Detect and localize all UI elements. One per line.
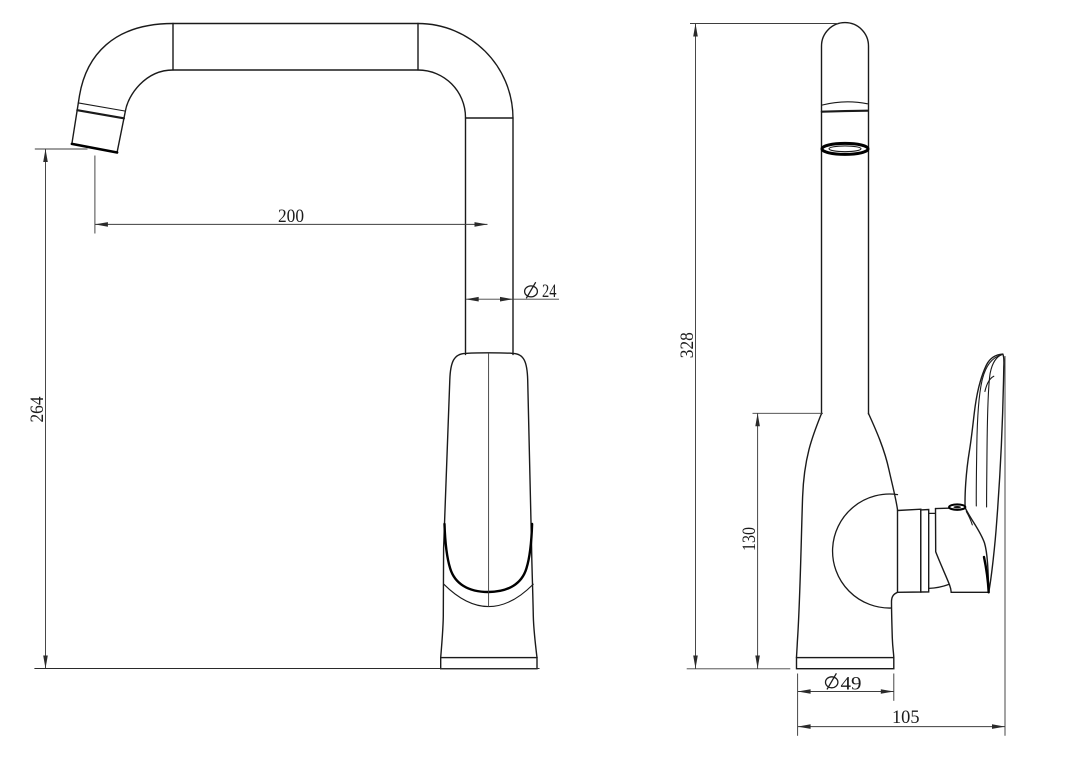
svg-text:130: 130 — [739, 527, 760, 551]
svg-text:24: 24 — [542, 281, 557, 302]
svg-text:328: 328 — [677, 332, 698, 358]
svg-text:264: 264 — [27, 396, 48, 422]
svg-text:105: 105 — [892, 707, 920, 728]
svg-text:200: 200 — [278, 206, 304, 227]
svg-text:49: 49 — [841, 673, 862, 694]
